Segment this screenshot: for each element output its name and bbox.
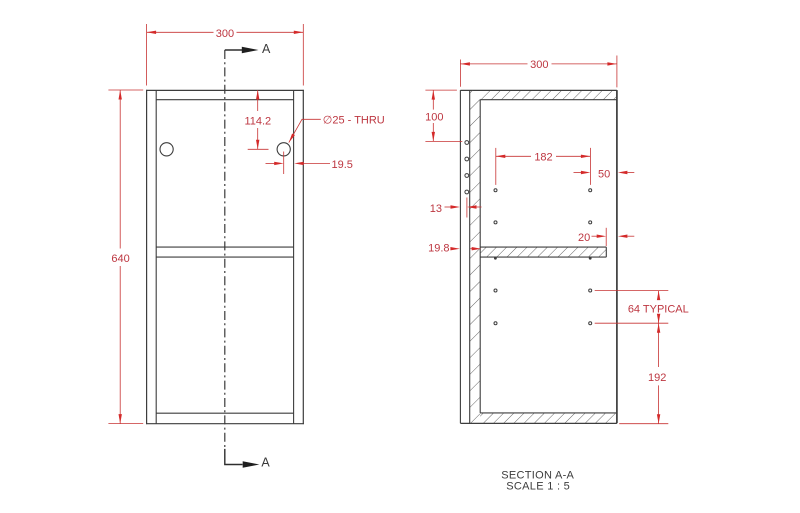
svg-text:300: 300 — [216, 28, 234, 40]
svg-text:A: A — [262, 42, 271, 56]
svg-text:64 TYPICAL: 64 TYPICAL — [628, 304, 689, 316]
svg-text:20: 20 — [578, 232, 590, 244]
svg-text:50: 50 — [598, 168, 610, 180]
svg-text:640: 640 — [111, 253, 129, 265]
svg-text:∅25 - THRU: ∅25 - THRU — [323, 115, 385, 127]
svg-text:19.8: 19.8 — [428, 243, 449, 255]
svg-text:SCALE 1 : 5: SCALE 1 : 5 — [506, 480, 570, 492]
svg-text:100: 100 — [425, 112, 443, 124]
svg-text:A: A — [261, 456, 270, 470]
svg-text:13: 13 — [430, 203, 442, 215]
svg-text:182: 182 — [534, 152, 552, 164]
svg-text:300: 300 — [530, 59, 548, 71]
svg-text:114.2: 114.2 — [244, 115, 271, 127]
svg-text:19.5: 19.5 — [332, 159, 353, 171]
svg-text:192: 192 — [648, 372, 666, 384]
